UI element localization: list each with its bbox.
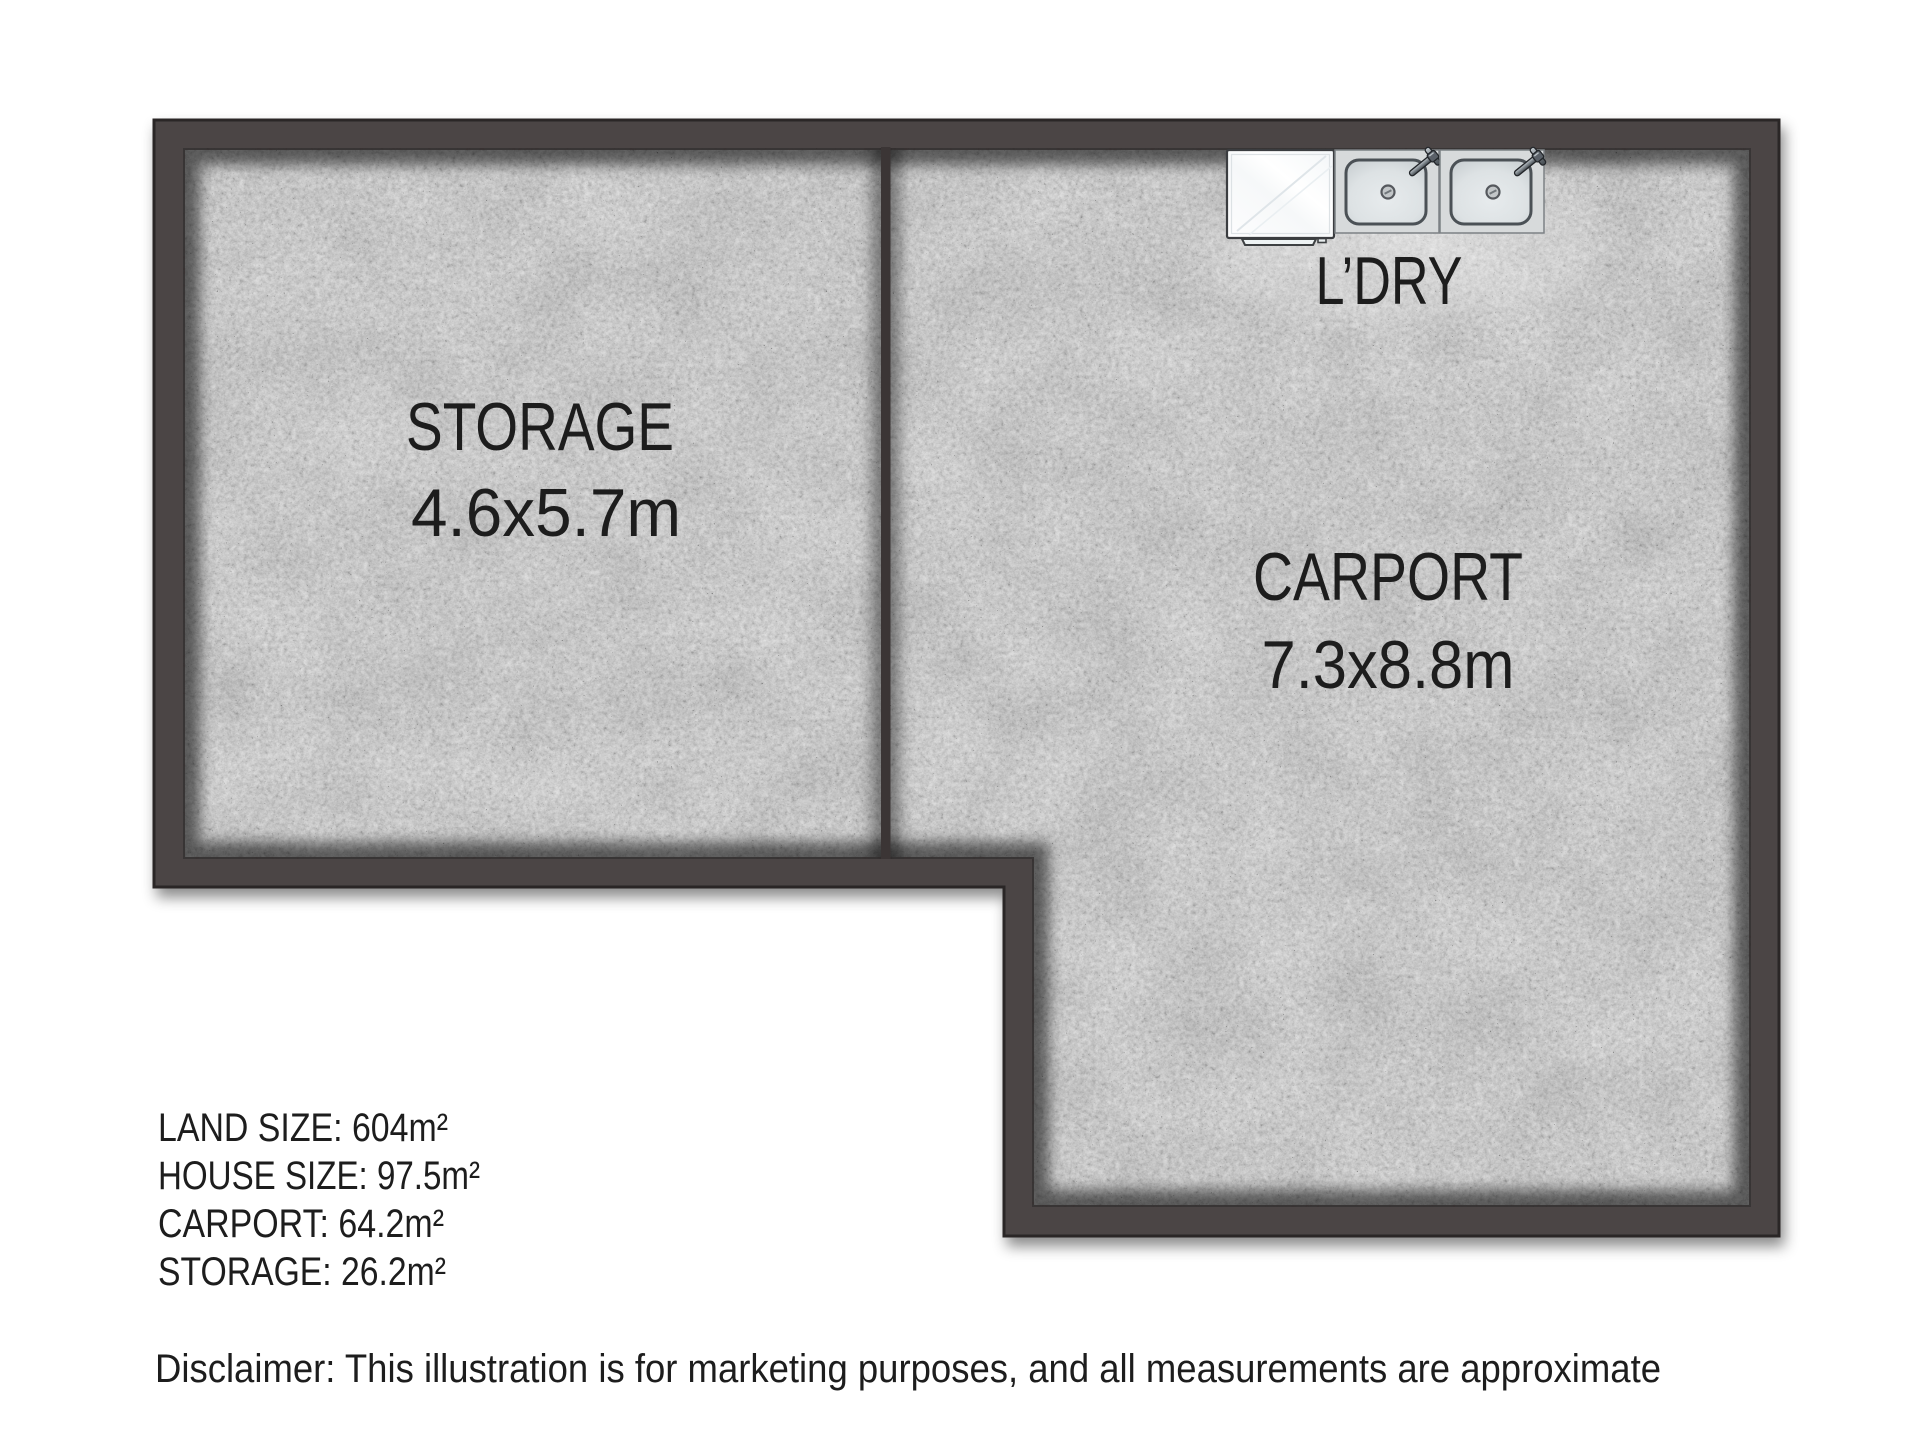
svg-text:Disclaimer: This illustration: Disclaimer: This illustration is for mar… [155,1347,1661,1391]
svg-text:L’DRY: L’DRY [1316,243,1463,319]
svg-text:STORAGE: STORAGE [406,389,674,465]
svg-text:7.3x8.8m: 7.3x8.8m [1262,627,1515,703]
svg-text:4.6x5.7m: 4.6x5.7m [411,475,681,551]
svg-text:LAND SIZE: 604m²: LAND SIZE: 604m² [158,1106,448,1150]
svg-text:HOUSE SIZE: 97.5m²: HOUSE SIZE: 97.5m² [158,1154,480,1198]
svg-text:STORAGE: 26.2m²: STORAGE: 26.2m² [158,1250,446,1294]
svg-text:CARPORT: CARPORT [1253,539,1523,615]
svg-text:CARPORT: 64.2m²: CARPORT: 64.2m² [158,1202,444,1246]
